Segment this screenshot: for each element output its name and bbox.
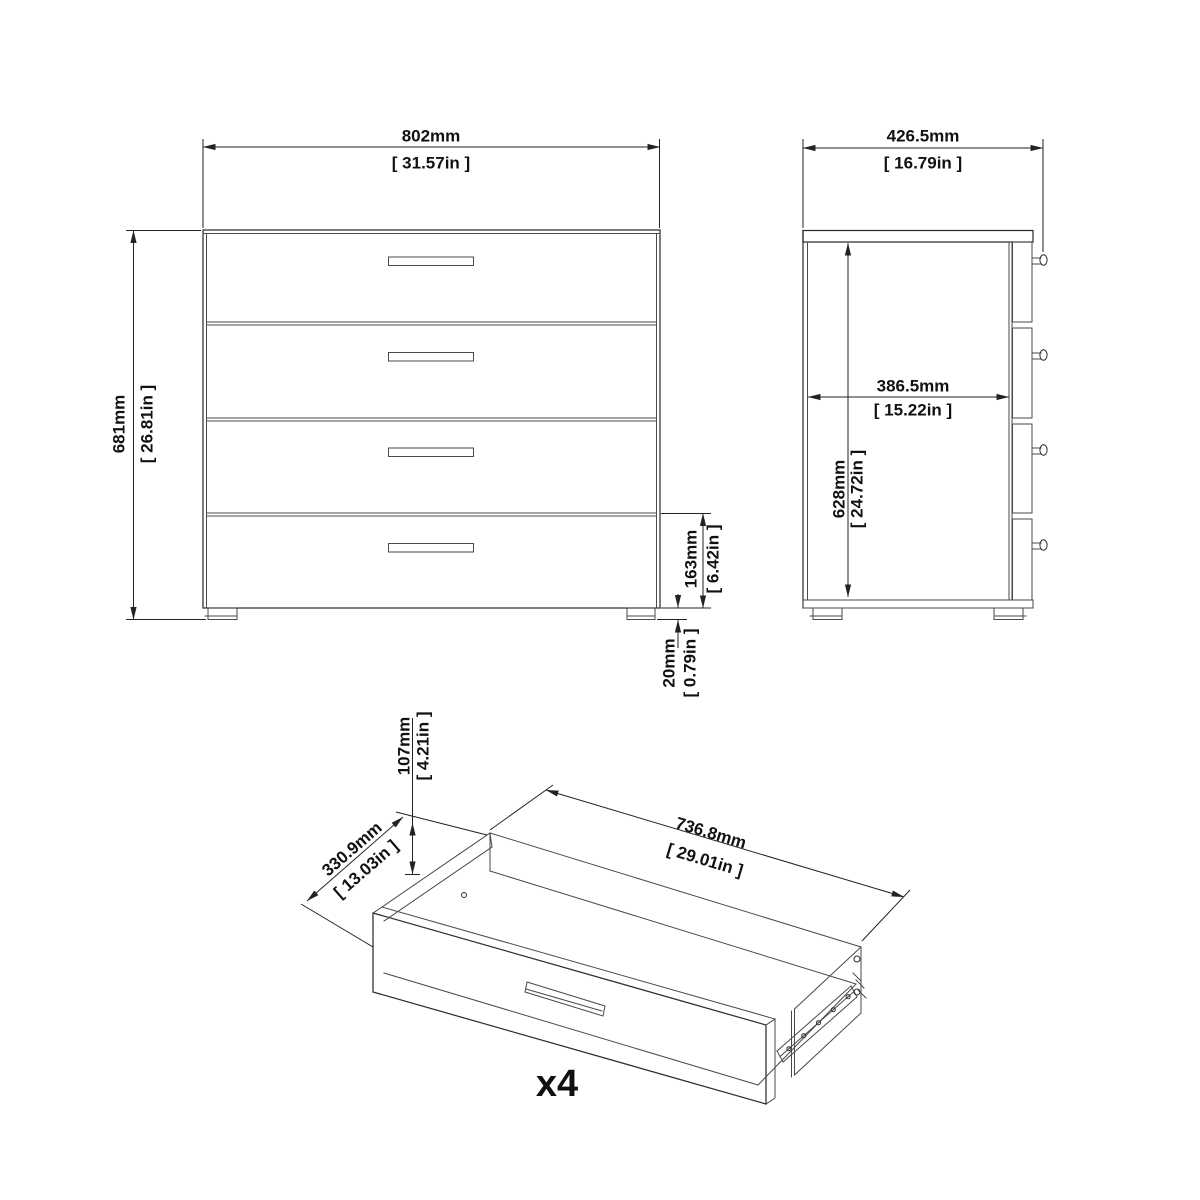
dimension-side-inner-depth: 386.5mm [ 15.22in ] xyxy=(808,377,1009,420)
side-knobs xyxy=(1032,255,1047,550)
drawer-front-edge xyxy=(1013,242,1033,322)
bottom-drawer-mm-label: 163mm xyxy=(682,530,701,589)
dimension-side-depth: 426.5mm [ 16.79in ] xyxy=(803,127,1043,253)
drawer-isometric-view: 107mm [ 4.21in ] 330.9mm [ 13.03in ] 736… xyxy=(301,712,910,1105)
drawer-slide-rail xyxy=(777,956,866,1062)
drawer-box xyxy=(373,833,861,1104)
front-height-in-label: [ 26.81in ] xyxy=(138,385,157,463)
drawer-height-in-label: [ 4.21in ] xyxy=(414,712,433,781)
dimension-diagram-page: 802mm [ 31.57in ] 681mm [ 26.81in ] 163m… xyxy=(0,0,1200,1200)
knob xyxy=(1032,350,1047,360)
dimension-bottom-drawer-height: 163mm [ 6.42in ] xyxy=(661,514,723,609)
inner-depth-mm-label: 386.5mm xyxy=(877,377,950,396)
side-drawer-fronts xyxy=(1013,242,1033,600)
inner-depth-in-label: [ 15.22in ] xyxy=(874,401,952,420)
dimension-foot-height: 20mm [ 0.79in ] xyxy=(657,594,700,697)
drawer-front-edge xyxy=(1013,424,1033,513)
drawer-front-edge xyxy=(1013,519,1033,600)
front-drawer-handles xyxy=(389,257,474,552)
drawer-quantity-label: x4 xyxy=(536,1063,578,1105)
drawer-separation-lines xyxy=(207,322,657,516)
drawer-iso-handle xyxy=(525,982,605,1016)
drawer-front-edge xyxy=(1013,328,1033,418)
side-view: 426.5mm [ 16.79in ] 386.5mm [ 15.22in ] … xyxy=(803,127,1047,620)
chest-of-drawers-diagram: 802mm [ 31.57in ] 681mm [ 26.81in ] 163m… xyxy=(0,0,1200,1200)
side-depth-mm-label: 426.5mm xyxy=(887,127,960,146)
foot-height-in-label: [ 0.79in ] xyxy=(681,629,700,698)
knob xyxy=(1032,255,1047,265)
dimension-drawer-depth: 330.9mm [ 13.03in ] xyxy=(301,812,487,947)
dimension-drawer-width: 736.8mm [ 29.01in ] xyxy=(490,785,910,941)
dimension-front-height: 681mm [ 26.81in ] xyxy=(110,231,207,620)
rail-screw xyxy=(854,989,860,995)
knob xyxy=(1032,540,1047,550)
front-feet xyxy=(205,608,655,620)
drawer-handle xyxy=(389,544,474,553)
rail-screw xyxy=(854,956,860,962)
drawer-height-mm-label: 107mm xyxy=(395,717,414,776)
foot-left xyxy=(205,608,237,620)
front-width-mm-label: 802mm xyxy=(402,127,461,146)
side-depth-in-label: [ 16.79in ] xyxy=(884,154,962,173)
drawer-handle xyxy=(389,353,474,362)
bottom-drawer-in-label: [ 6.42in ] xyxy=(704,525,723,594)
front-width-in-label: [ 31.57in ] xyxy=(392,154,470,173)
foot-right xyxy=(627,608,655,620)
drawer-handle xyxy=(389,448,474,457)
inner-height-in-label: [ 24.72in ] xyxy=(848,450,867,528)
foot-right xyxy=(994,608,1026,620)
foot-left xyxy=(810,608,842,620)
inner-height-mm-label: 628mm xyxy=(830,460,849,519)
dimension-side-inner-height: 628mm [ 24.72in ] xyxy=(830,243,867,597)
foot-height-mm-label: 20mm xyxy=(660,638,679,687)
knob xyxy=(1032,445,1047,455)
front-view: 802mm [ 31.57in ] 681mm [ 26.81in ] 163m… xyxy=(110,127,723,698)
front-height-mm-label: 681mm xyxy=(110,395,129,454)
side-feet xyxy=(810,608,1026,620)
cam-hole xyxy=(462,893,467,898)
dimension-front-width: 802mm [ 31.57in ] xyxy=(203,127,660,229)
drawer-handle xyxy=(389,257,474,266)
